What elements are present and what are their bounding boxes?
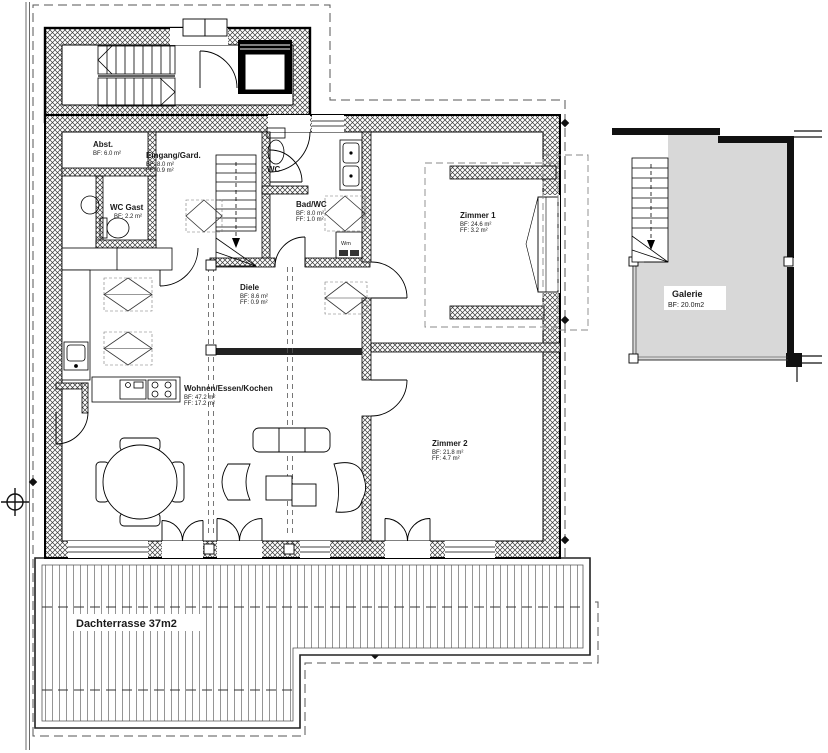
washer-label: Wm xyxy=(341,241,351,247)
property-line xyxy=(26,2,30,750)
room-label-abst: Abst. xyxy=(93,140,113,149)
room-label-bad: Bad/WC xyxy=(296,200,327,209)
room-label-wohnen: Wohnen/Essen/Kochen xyxy=(184,384,273,393)
room-label-zimmer2: Zimmer 2 xyxy=(432,439,468,448)
room-label-galerie: Galerie xyxy=(672,289,703,299)
room-area2-eingang: FF: 0.9 m² xyxy=(146,168,174,174)
room-label-zimmer1: Zimmer 1 xyxy=(460,211,496,220)
room-label-wc-gast: WC Gast xyxy=(110,203,144,212)
stairwell xyxy=(45,19,310,122)
room-area2-diele: FF: 0.9 m² xyxy=(240,300,268,306)
room-area2-bad: FF: 1.0 m² xyxy=(296,217,324,223)
room-area2-wohnen: FF: 17.2 m² xyxy=(184,401,215,407)
room-area-abst: BF: 6.0 m² xyxy=(93,151,121,157)
room-area-galerie: BF: 20.0m2 xyxy=(668,302,704,309)
roof-terrace: Dachterrasse 37m2 xyxy=(35,558,590,728)
elevator xyxy=(238,40,292,94)
room-label-diele: Diele xyxy=(240,283,260,292)
floorplan-svg: Dachterrasse 37m2 xyxy=(0,0,828,753)
room-label-wc: WC xyxy=(267,165,281,174)
galerie-stairs xyxy=(632,158,668,262)
terrace-label: Dachterrasse 37m2 xyxy=(76,618,177,630)
room-label-eingang: Eingang/Gard. xyxy=(146,151,201,160)
north-openings xyxy=(268,115,344,132)
survey-crosshair-icon xyxy=(1,488,29,516)
room-area2-zimmer2: FF: 4.7 m² xyxy=(432,456,460,462)
room-area2-zimmer1: FF: 3.2 m² xyxy=(460,228,488,234)
room-area-wc-gast: BF: 2.2 m² xyxy=(114,214,142,220)
floor-plan: Dachterrasse 37m2 xyxy=(0,0,828,753)
galerie-block: Galerie BF: 20.0m2 xyxy=(612,128,822,382)
terrace-decking xyxy=(42,565,583,721)
